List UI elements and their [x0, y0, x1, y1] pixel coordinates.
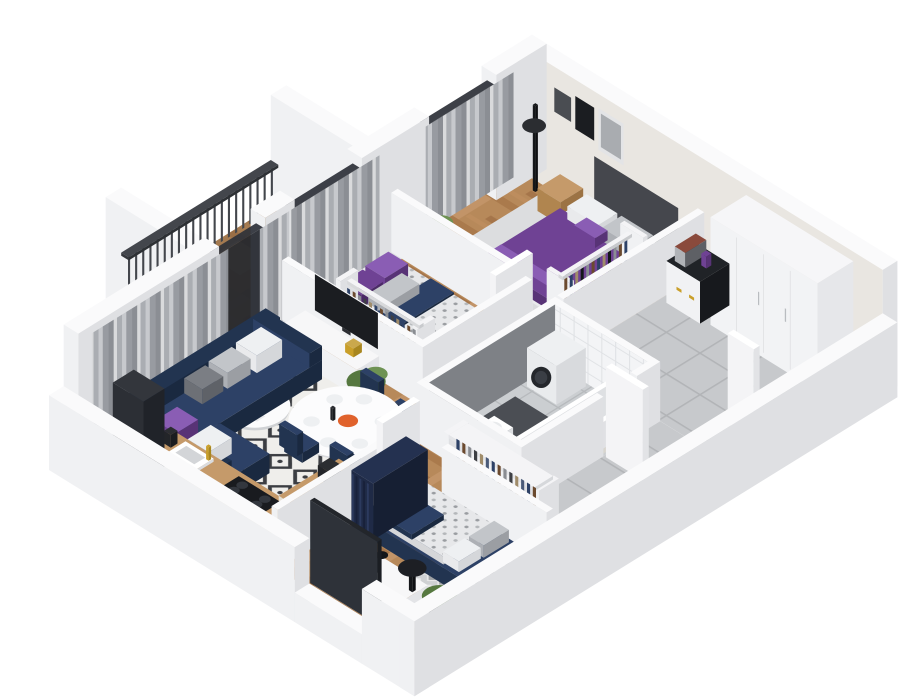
hall-wardrobe-door-seams-item: [736, 237, 737, 336]
kids-stool-seat: [398, 559, 427, 577]
plate-4: [352, 439, 369, 449]
master-floor-lamp-shade: [522, 118, 546, 133]
plate-6: [303, 416, 320, 426]
dining-chair-3-back-side: [297, 432, 303, 457]
balcony-railing-item: [221, 197, 223, 242]
plate-2: [356, 394, 373, 404]
kids-canopy-pleats-item: [352, 474, 354, 527]
kitchen-faucet-front: [206, 446, 209, 461]
plate-1: [326, 394, 343, 404]
table-candle-front: [330, 407, 333, 421]
floorplan-scene: [0, 0, 908, 700]
master-floor-lamp-pole-front: [533, 105, 536, 192]
kids-canopy-pleats-item: [367, 483, 369, 536]
south-east-wall-front: [400, 612, 415, 696]
master-floor-lamp-pole-side: [535, 105, 538, 192]
hall-wardrobe-door-seams-item: [790, 271, 791, 370]
balcony-railing-item: [242, 184, 244, 229]
hob-burner-3: [259, 496, 271, 503]
apartment-3d-floorplan-render: [0, 0, 908, 700]
hall-wardrobe-handles-item: [785, 308, 786, 322]
balcony-railing-item: [214, 201, 216, 246]
balcony-railing-item: [228, 193, 230, 238]
kids-canopy-pleats-item: [359, 478, 361, 531]
fruit-bowl: [338, 415, 358, 428]
kitchen-faucet-side: [209, 446, 212, 461]
hob-burner-1: [236, 482, 248, 489]
hall-wardrobe-handles-item: [758, 292, 759, 306]
balcony-railing-item: [235, 188, 237, 233]
kids-canopy-pleats-item: [363, 481, 365, 534]
hall-wardrobe-door-seams-item: [763, 254, 764, 353]
washing-machine-drum: [535, 371, 548, 384]
table-candle-side: [333, 407, 336, 421]
kids-canopy-pleats-item: [356, 476, 358, 529]
